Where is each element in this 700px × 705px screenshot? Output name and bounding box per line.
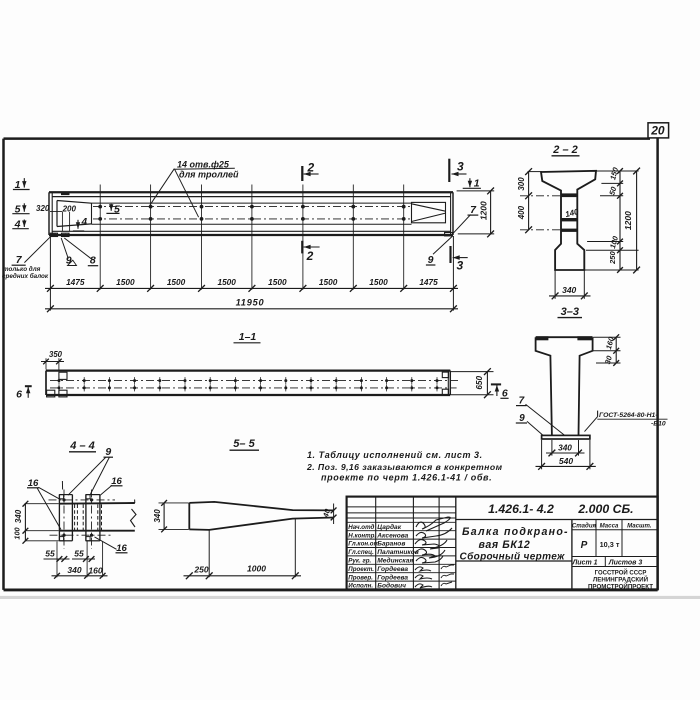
svg-text:2: 2 [306, 249, 314, 263]
svg-text:1475: 1475 [66, 277, 85, 287]
svg-text:вая БК12: вая БК12 [479, 539, 531, 551]
svg-text:2.000 СБ.: 2.000 СБ. [577, 502, 633, 516]
svg-text:Проект.: Проект. [348, 566, 374, 573]
svg-text:средних балок: средних балок [2, 272, 49, 280]
svg-text:1500: 1500 [116, 277, 135, 287]
svg-text:11950: 11950 [236, 297, 265, 307]
svg-text:Палатников: Палатников [377, 549, 419, 556]
svg-text:Гл.спец.: Гл.спец. [348, 549, 374, 556]
svg-text:1500: 1500 [319, 277, 338, 287]
svg-text:2 – 2: 2 – 2 [552, 144, 577, 156]
svg-text:Рук. гр.: Рук. гр. [348, 558, 371, 565]
svg-text:1. Таблицу исполнений см. лис: 1. Таблицу исполнений см. лист 3. [307, 450, 483, 460]
svg-text:1500: 1500 [268, 277, 287, 287]
svg-text:1200: 1200 [478, 201, 488, 220]
svg-text:14 отв.ф25: 14 отв.ф25 [177, 159, 230, 169]
svg-text:55: 55 [45, 548, 55, 558]
svg-text:Гл.кон.от: Гл.кон.от [348, 541, 379, 548]
svg-text:Масшт.: Масшт. [627, 523, 652, 530]
svg-text:Мединская: Мединская [377, 557, 413, 565]
svg-text:3–3: 3–3 [561, 306, 579, 318]
svg-text:7: 7 [519, 395, 525, 406]
svg-text:1000: 1000 [247, 564, 266, 574]
svg-text:-Б10: -Б10 [651, 421, 666, 428]
svg-text:для троллей: для троллей [179, 170, 239, 180]
svg-text:9: 9 [428, 254, 434, 266]
svg-text:Листов 3: Листов 3 [608, 560, 643, 567]
svg-text:160: 160 [88, 565, 102, 575]
svg-text:1500: 1500 [369, 277, 388, 287]
svg-text:1500: 1500 [217, 277, 236, 287]
svg-text:150: 150 [608, 166, 620, 181]
svg-text:20: 20 [650, 124, 665, 138]
svg-text:7: 7 [16, 254, 23, 266]
svg-text:Лист 1: Лист 1 [571, 560, 597, 567]
svg-text:340: 340 [67, 565, 81, 575]
svg-text:проекте по черт 1.426.1-41 / о: проекте по черт 1.426.1-41 / обв. [321, 472, 492, 482]
svg-text:3: 3 [457, 258, 464, 272]
svg-text:340: 340 [153, 509, 162, 523]
svg-text:ГОСТ-5264-80-Н1-: ГОСТ-5264-80-Н1- [599, 412, 658, 419]
svg-text:Нач.отд: Нач.отд [348, 524, 374, 531]
svg-text:1475: 1475 [419, 277, 438, 287]
svg-text:Бодович: Бодович [377, 582, 406, 590]
svg-text:2. Поз. 9,16 заказываются в ко: 2. Поз. 9,16 заказываются в конкретном [306, 462, 503, 472]
svg-text:340: 340 [558, 443, 572, 453]
svg-text:100: 100 [12, 527, 21, 539]
svg-text:ПРОМСТРОЙПРОЕКТ: ПРОМСТРОЙПРОЕКТ [588, 582, 653, 590]
svg-text:Гордеева: Гордеева [377, 573, 408, 581]
svg-text:1200: 1200 [623, 211, 633, 230]
svg-text:8: 8 [90, 255, 96, 267]
svg-text:Исполн.: Исполн. [348, 583, 373, 590]
svg-text:55: 55 [74, 548, 84, 558]
svg-text:300: 300 [517, 177, 526, 191]
svg-text:16: 16 [116, 543, 127, 554]
svg-text:5– 5: 5– 5 [233, 438, 255, 450]
svg-text:Р: Р [581, 540, 588, 551]
svg-text:Сборочный чертеж: Сборочный чертеж [460, 551, 565, 563]
svg-text:100: 100 [608, 234, 620, 249]
svg-text:Стадия: Стадия [572, 523, 597, 530]
svg-text:16: 16 [111, 476, 122, 487]
svg-text:Провер.: Провер. [348, 574, 373, 581]
svg-text:9: 9 [105, 446, 111, 458]
svg-text:ГОССТРОЙ СССР: ГОССТРОЙ СССР [595, 569, 647, 577]
svg-text:7: 7 [470, 204, 477, 216]
svg-text:Цардак: Цардак [377, 523, 401, 531]
svg-text:3: 3 [457, 159, 464, 173]
svg-text:320: 320 [36, 204, 50, 213]
svg-text:340: 340 [14, 509, 23, 523]
svg-text:200: 200 [62, 204, 77, 213]
svg-text:50: 50 [607, 185, 618, 196]
svg-text:ЛЕНИНГРАДСКИЙ: ЛЕНИНГРАДСКИЙ [593, 576, 649, 584]
svg-text:1–1: 1–1 [239, 331, 257, 343]
svg-text:250: 250 [608, 251, 617, 265]
svg-text:250: 250 [193, 565, 208, 575]
svg-text:Баранов: Баранов [377, 541, 405, 548]
svg-text:Балка подкрано-: Балка подкрано- [462, 526, 569, 538]
svg-text:9: 9 [519, 413, 525, 424]
svg-text:только для: только для [3, 265, 41, 273]
svg-text:4 – 4: 4 – 4 [69, 440, 94, 452]
svg-text:Аксенова: Аксенова [376, 532, 408, 539]
svg-text:650: 650 [475, 376, 484, 390]
svg-text:10,3 т: 10,3 т [600, 540, 620, 549]
svg-text:Гордеева: Гордеева [377, 565, 408, 573]
svg-text:16: 16 [28, 478, 39, 489]
svg-text:1500: 1500 [167, 277, 186, 287]
svg-text:4: 4 [81, 217, 88, 228]
svg-text:Н.контр.: Н.контр. [348, 532, 376, 539]
svg-text:540: 540 [559, 456, 573, 466]
svg-text:340: 340 [562, 285, 576, 295]
svg-text:400: 400 [517, 205, 526, 220]
svg-text:Масса: Масса [600, 523, 619, 530]
svg-text:1.426.1- 4.2: 1.426.1- 4.2 [488, 502, 554, 516]
svg-text:6: 6 [16, 389, 22, 401]
svg-text:2: 2 [306, 160, 314, 174]
svg-text:350: 350 [49, 350, 63, 359]
